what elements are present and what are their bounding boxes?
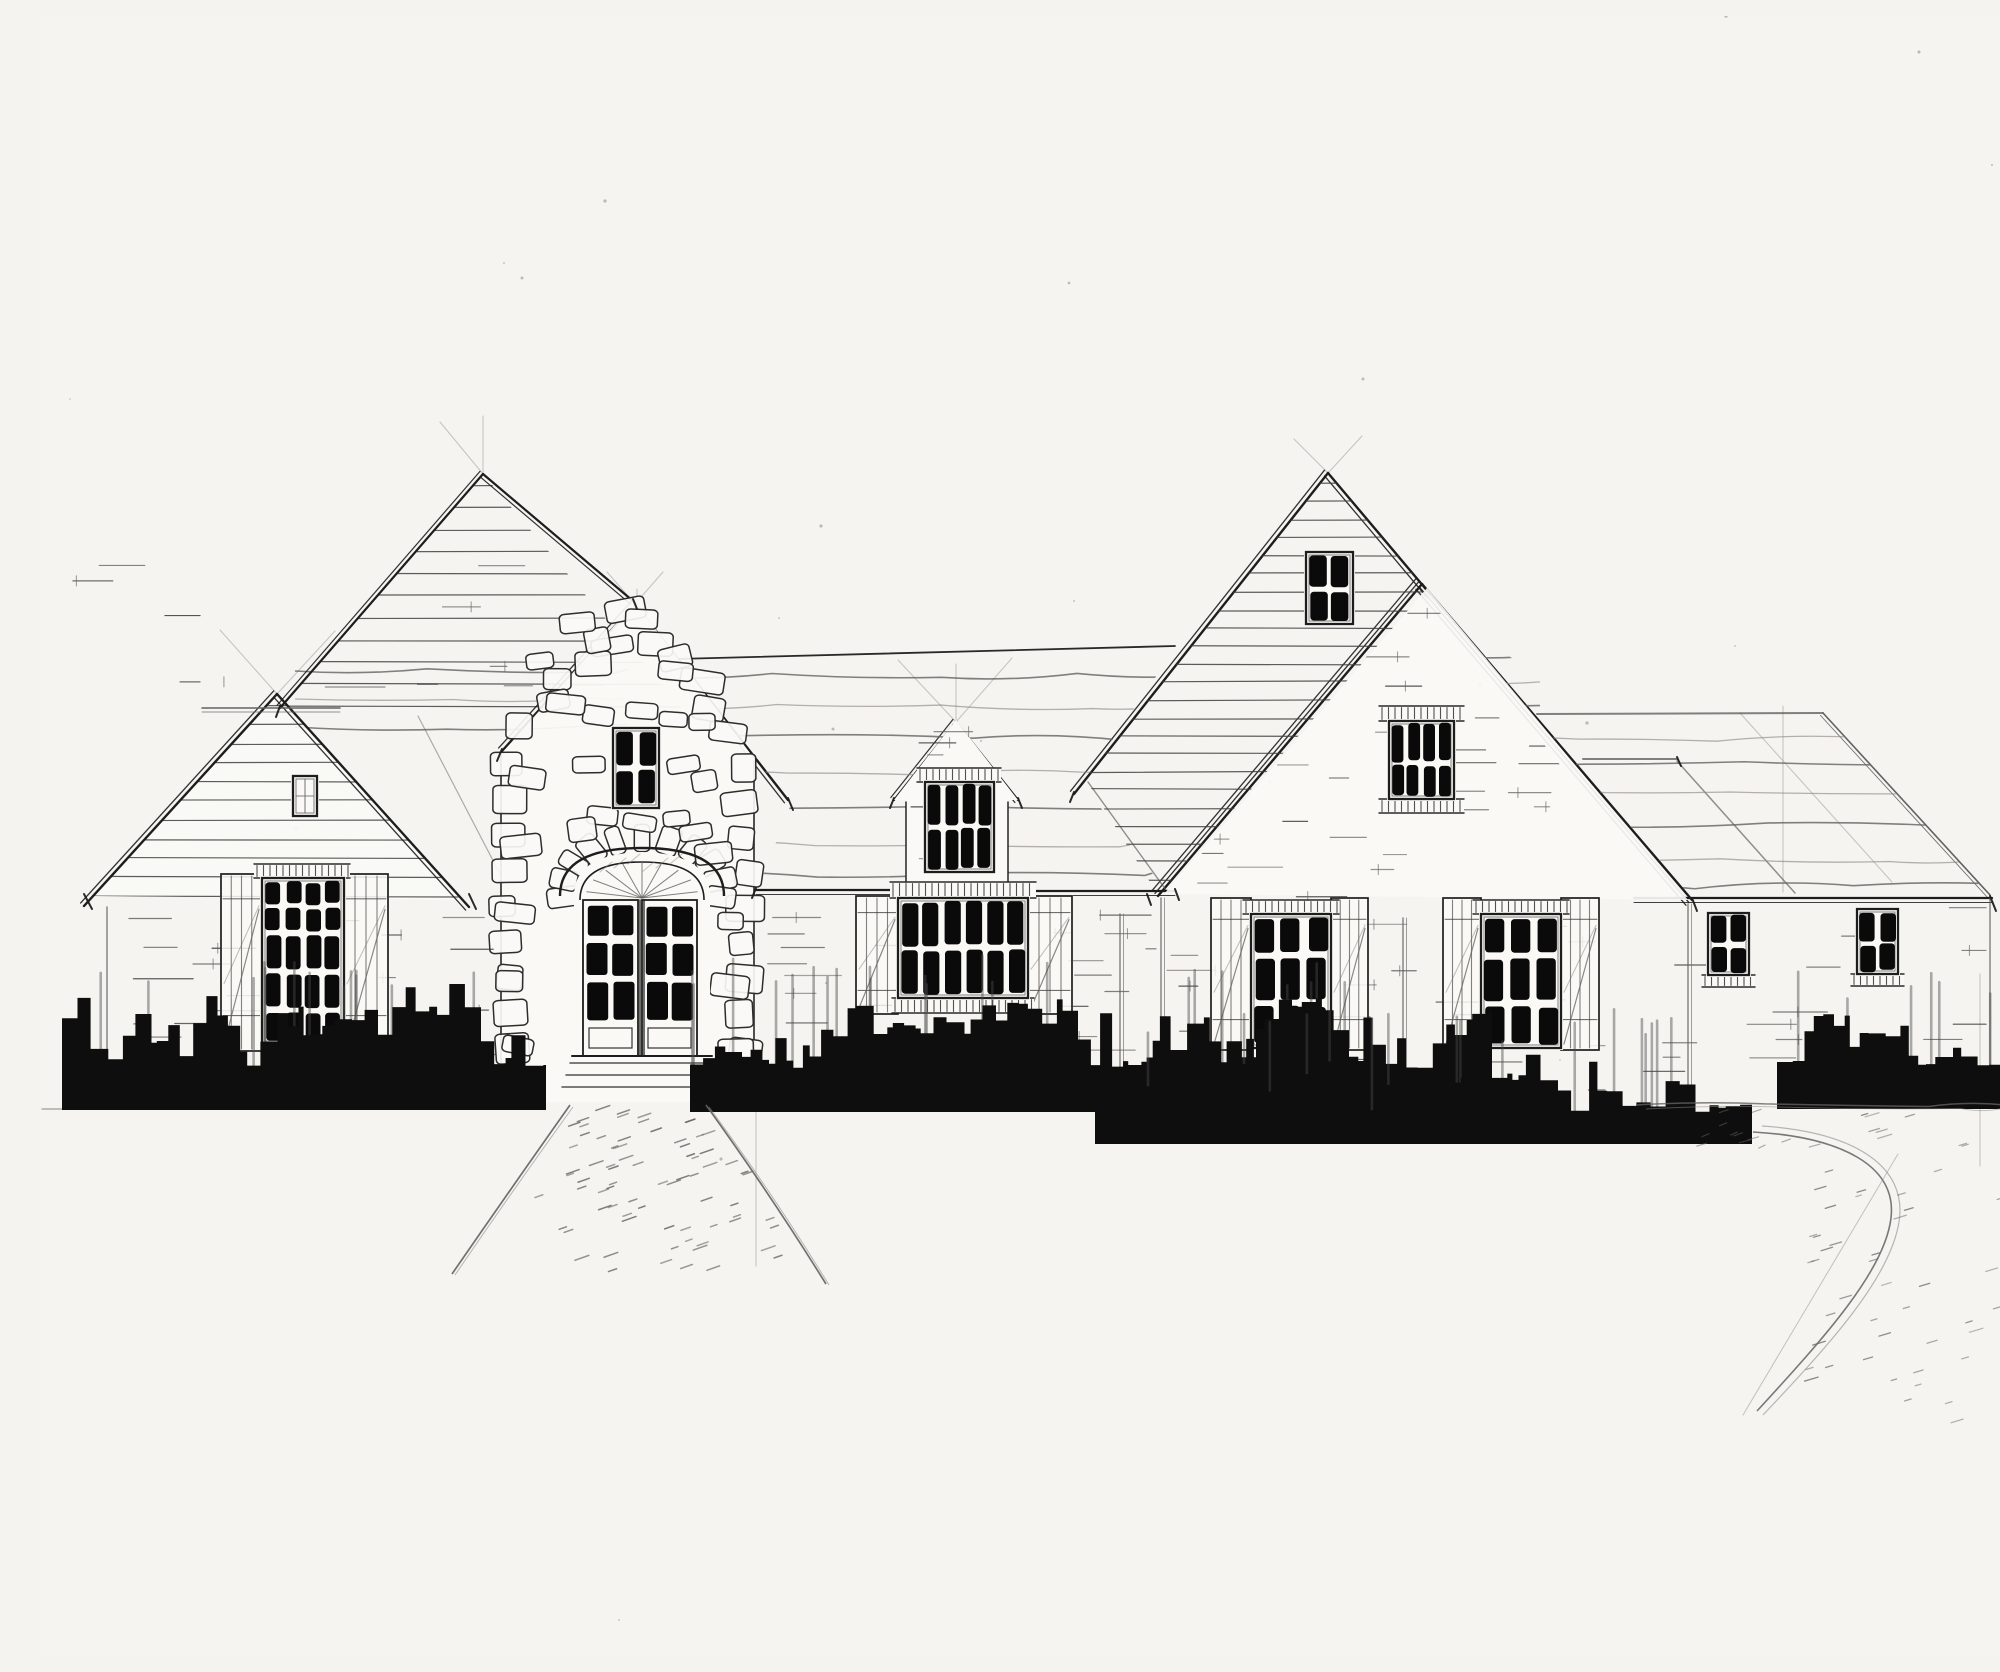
house-elevation-sketch: Front elevation sketch of a French-count… <box>40 16 2000 1656</box>
entry-tower-upper-window <box>611 726 661 810</box>
entry-double-door <box>560 848 724 1087</box>
left-gable-loft-window <box>291 774 319 818</box>
center-window <box>890 882 1036 1013</box>
right-left-window-shutter-left <box>1210 897 1252 1051</box>
far-wing-window-left <box>1702 911 1755 987</box>
right-gable-window <box>1379 706 1464 813</box>
right-right-window-shutter-right <box>1560 897 1600 1051</box>
right-gable-attic-window <box>1304 550 1355 626</box>
sketch-svg <box>40 16 2000 1656</box>
center-dormer-window <box>917 768 1001 874</box>
center-window-shutter-right <box>1027 895 1073 1015</box>
center-window-shutter-left <box>855 895 899 1015</box>
far-wing-window-right <box>1851 907 1904 986</box>
right-left-window-shutter-right <box>1330 897 1369 1051</box>
